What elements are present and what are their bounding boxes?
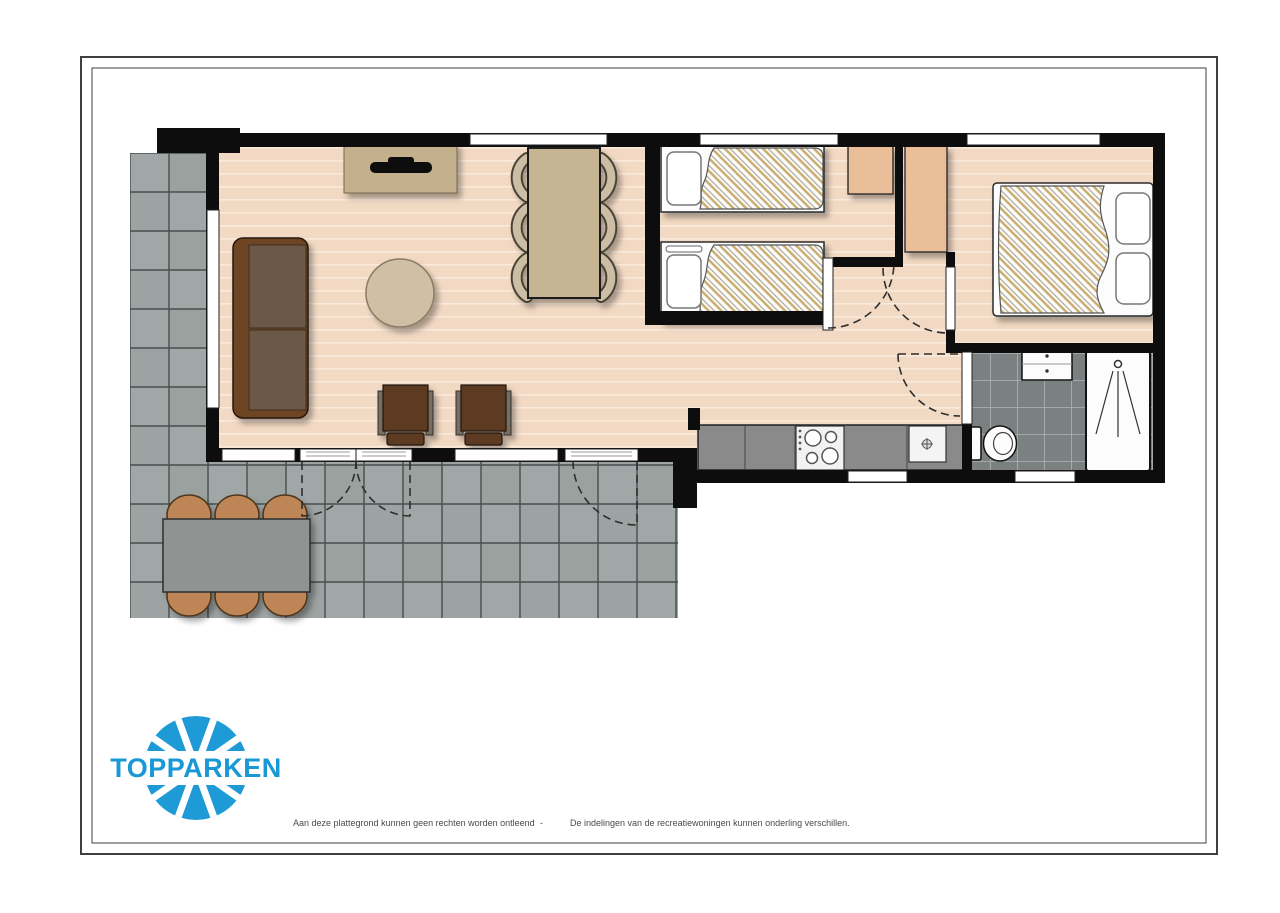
duvet (700, 148, 823, 209)
wall-bathroom-top (946, 343, 1165, 353)
bathroom-door-leaf (962, 352, 972, 424)
bedroom2-door-leaf (823, 258, 833, 330)
entrance-door-leaf (565, 449, 638, 461)
logo-wordmark: TOPPARKEN (110, 753, 282, 783)
disclaimer-separator: - (540, 818, 543, 828)
window-living-bottom-2 (455, 449, 558, 461)
outdoor-table (163, 519, 310, 592)
disclaimer-left: Aan deze plattegrond kunnen geen rechten… (293, 818, 535, 828)
burner (807, 453, 818, 464)
window-living-bottom-1 (222, 449, 295, 461)
sofa-cushion (249, 245, 306, 328)
knob (799, 436, 802, 439)
coffee-table (366, 259, 434, 327)
burner (826, 432, 837, 443)
outdoor-dining-set (163, 495, 310, 616)
duvet (699, 245, 823, 319)
shower (1086, 351, 1150, 471)
window-dining (470, 134, 607, 145)
wall-bedroom2-bottom (645, 311, 825, 325)
window-master (967, 134, 1100, 145)
single-bed-1 (661, 145, 824, 212)
armchair-seat (383, 385, 428, 431)
tv (370, 162, 432, 173)
page: TOPPARKEN Aan deze plattegrond kunnen ge… (0, 0, 1280, 913)
faucet-dot (1045, 354, 1048, 357)
faucet-dot (1045, 369, 1048, 372)
closet-bedroom-2 (848, 146, 893, 194)
pillow (667, 255, 701, 308)
double-bed (993, 183, 1153, 316)
master-door-leaf (946, 267, 955, 330)
wall-kitchen-stub (688, 408, 700, 430)
wall-bottom-kitchen (690, 470, 1165, 483)
knob (799, 442, 802, 445)
french-door-left-leaf (300, 449, 356, 461)
kitchen (698, 425, 963, 470)
knob (799, 448, 802, 451)
topparken-logo: TOPPARKEN (110, 712, 282, 825)
disclaimer-right: De indelingen van de recreatiewoningen k… (570, 818, 850, 828)
tv-cabinet (344, 143, 457, 193)
kitchen-sink (909, 426, 946, 462)
armchair-footrest (465, 433, 502, 445)
french-door-right-leaf (356, 449, 412, 461)
sofa (233, 238, 308, 418)
burner (805, 430, 821, 446)
closet-master (905, 146, 947, 252)
dining-table (528, 148, 600, 298)
floor-plan-drawing: TOPPARKEN Aan deze plattegrond kunnen ge… (0, 0, 1280, 913)
cooktop (796, 426, 844, 470)
single-bed-2 (661, 242, 824, 321)
sofa-cushion (249, 330, 306, 410)
pillow (1116, 193, 1150, 244)
window-bathroom (1015, 471, 1075, 482)
armchair-seat (461, 385, 506, 431)
footer-disclaimer: Aan deze plattegrond kunnen geen rechten… (293, 818, 850, 828)
window-bedroom2 (700, 134, 838, 145)
wall-bedroom2-left (645, 147, 660, 325)
wall-right (1153, 133, 1165, 483)
pillow (667, 152, 701, 205)
toilet-bowl (984, 426, 1017, 461)
toilet (967, 426, 1017, 461)
wall-closet-divider (895, 147, 903, 267)
dining-set (517, 148, 612, 298)
burner (822, 448, 838, 464)
cooktop-panel (796, 426, 844, 470)
knob (799, 430, 802, 433)
armchair-footrest (387, 433, 424, 445)
window-living-left (207, 210, 219, 408)
headboard-roll (666, 246, 702, 252)
wall-hallway-top (833, 257, 903, 267)
duvet (999, 186, 1109, 313)
window-kitchen (848, 471, 907, 482)
pillow (1116, 253, 1150, 304)
